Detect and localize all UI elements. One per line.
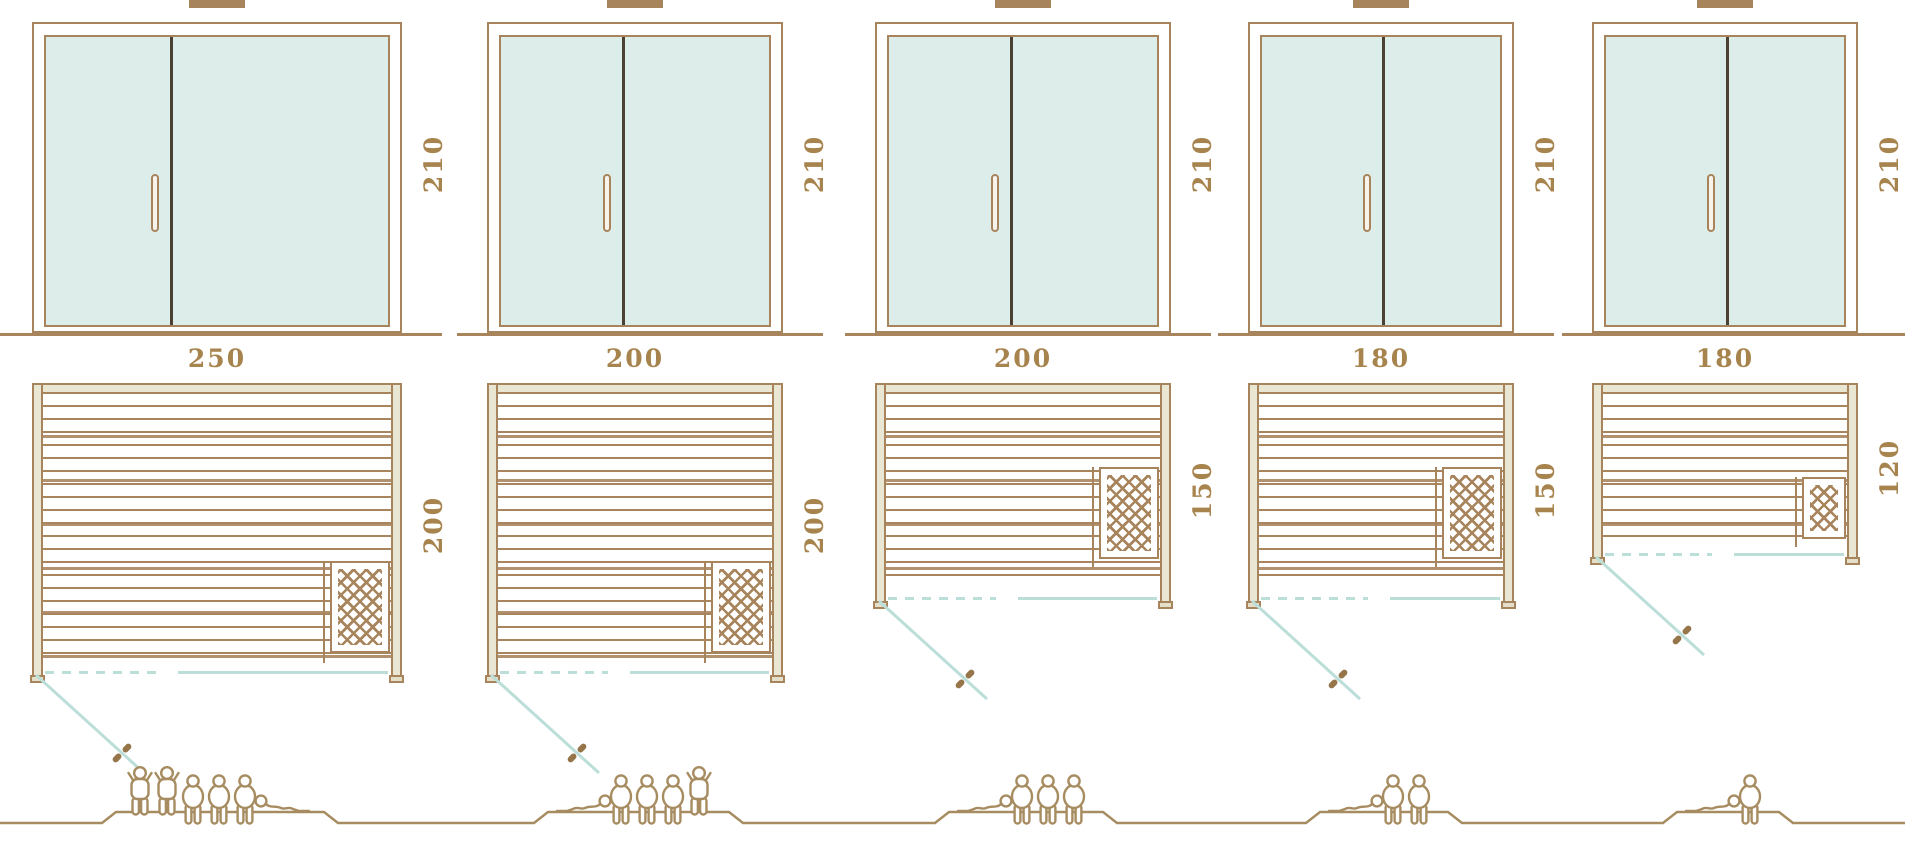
- person-sitting-icon: [235, 775, 255, 823]
- back-wall: [487, 383, 783, 394]
- heater-grill-pattern: [1450, 475, 1494, 551]
- glass-doors: [44, 35, 390, 327]
- glass-doors: [499, 35, 771, 327]
- ground-line: [457, 333, 823, 336]
- person-lying-icon: [1329, 796, 1382, 811]
- person-sitting-icon: [1012, 775, 1032, 823]
- back-wall: [1592, 383, 1858, 394]
- person-standing-icon: [129, 767, 152, 814]
- sauna-size-comparison-diagram: 250 210 200 200 210: [0, 0, 1920, 856]
- back-wall: [875, 383, 1171, 394]
- heater-grill-pattern: [1810, 485, 1838, 531]
- person-lying-icon: [557, 796, 610, 811]
- height-dimension-label: 210: [1531, 122, 1561, 206]
- door-divider: [1382, 37, 1385, 325]
- door-divider: [1010, 37, 1013, 325]
- width-dimension-label: 180: [1592, 344, 1858, 373]
- heater-icon: [711, 561, 771, 653]
- height-dimension-label: 210: [800, 122, 830, 206]
- heater-partition-line: [1435, 467, 1437, 567]
- person-sitting-icon: [1409, 775, 1429, 823]
- left-wall: [875, 383, 886, 605]
- sauna-floor-plan: [32, 383, 402, 679]
- heater-partition-line: [1092, 467, 1094, 567]
- chimney-icon: [995, 0, 1051, 8]
- door-swing-icon: [1242, 593, 1422, 743]
- door-swing-icon: [869, 593, 1049, 743]
- wall-foot: [770, 675, 785, 683]
- back-wall: [32, 383, 402, 394]
- wall-foot: [1845, 557, 1860, 565]
- person-sitting-icon: [1383, 775, 1403, 823]
- heater-grill-pattern: [338, 569, 382, 645]
- sauna-floor-plan: [1248, 383, 1514, 605]
- sauna-floor-plan: [1592, 383, 1858, 561]
- person-sitting-icon: [1064, 775, 1084, 823]
- depth-dimension-label: 150: [1531, 448, 1561, 532]
- heater-icon: [1442, 467, 1502, 559]
- door-divider: [1726, 37, 1729, 325]
- person-lying-icon: [958, 796, 1011, 811]
- door-handle-icon: [151, 174, 159, 232]
- person-sitting-icon: [611, 775, 631, 823]
- ground-line: [1562, 333, 1905, 336]
- right-wall: [391, 383, 402, 679]
- door-handle-icon: [991, 174, 999, 232]
- wall-foot: [1158, 601, 1173, 609]
- width-dimension-label: 250: [32, 344, 402, 373]
- right-wall: [1160, 383, 1171, 605]
- door-handle-icon: [1707, 174, 1715, 232]
- door-swing-icon: [1586, 549, 1766, 699]
- width-dimension-label: 200: [487, 344, 783, 373]
- chimney-icon: [189, 0, 245, 8]
- person-sitting-icon: [637, 775, 657, 823]
- height-dimension-label: 210: [419, 122, 449, 206]
- depth-dimension-label: 120: [1875, 426, 1905, 510]
- wall-foot: [1501, 601, 1516, 609]
- person-sitting-icon: [663, 775, 683, 823]
- ground-line: [0, 333, 442, 336]
- glass-doors: [1604, 35, 1846, 327]
- ground-line: [845, 333, 1211, 336]
- person-sitting-icon: [1740, 775, 1760, 823]
- person-standing-icon: [688, 767, 711, 814]
- heater-grill-pattern: [719, 569, 763, 645]
- sauna-front-view: [1248, 22, 1514, 333]
- left-wall: [1592, 383, 1603, 561]
- people-ground-line: [0, 812, 1905, 823]
- left-wall: [32, 383, 43, 679]
- sauna-front-view: [1592, 22, 1858, 333]
- glass-doors: [887, 35, 1159, 327]
- chimney-icon: [607, 0, 663, 8]
- person-sitting-icon: [1038, 775, 1058, 823]
- depth-dimension-label: 150: [1188, 448, 1218, 532]
- glass-front-line: [178, 671, 388, 674]
- right-wall: [1847, 383, 1858, 561]
- sauna-floor-plan: [875, 383, 1171, 605]
- door-divider: [622, 37, 625, 325]
- height-dimension-label: 210: [1188, 122, 1218, 206]
- width-dimension-label: 200: [875, 344, 1171, 373]
- right-wall: [772, 383, 783, 679]
- door-handle-icon: [1363, 174, 1371, 232]
- wall-foot: [389, 675, 404, 683]
- sauna-front-view: [875, 22, 1171, 333]
- depth-dimension-label: 200: [419, 483, 449, 567]
- door-handle-icon: [603, 174, 611, 232]
- heater-icon: [1802, 477, 1846, 539]
- door-divider: [170, 37, 173, 325]
- left-wall: [487, 383, 498, 679]
- height-dimension-label: 210: [1875, 122, 1905, 206]
- heater-partition-line: [704, 561, 706, 663]
- glass-doors: [1260, 35, 1502, 327]
- person-standing-icon: [156, 767, 179, 814]
- depth-dimension-label: 200: [800, 483, 830, 567]
- sauna-front-view: [32, 22, 402, 333]
- chimney-icon: [1353, 0, 1409, 8]
- heater-partition-line: [323, 561, 325, 663]
- heater-icon: [1099, 467, 1159, 559]
- heater-grill-pattern: [1107, 475, 1151, 551]
- heater-partition-line: [1795, 477, 1797, 547]
- left-wall: [1248, 383, 1259, 605]
- person-sitting-icon: [209, 775, 229, 823]
- width-dimension-label: 180: [1248, 344, 1514, 373]
- back-wall: [1248, 383, 1514, 394]
- person-lying-icon: [1686, 796, 1739, 811]
- ground-line: [1218, 333, 1554, 336]
- sauna-floor-plan: [487, 383, 783, 679]
- chimney-icon: [1697, 0, 1753, 8]
- person-lying-icon: [256, 796, 309, 811]
- capacity-people-strip: [0, 766, 1920, 856]
- heater-icon: [330, 561, 390, 653]
- right-wall: [1503, 383, 1514, 605]
- person-sitting-icon: [183, 775, 203, 823]
- sauna-front-view: [487, 22, 783, 333]
